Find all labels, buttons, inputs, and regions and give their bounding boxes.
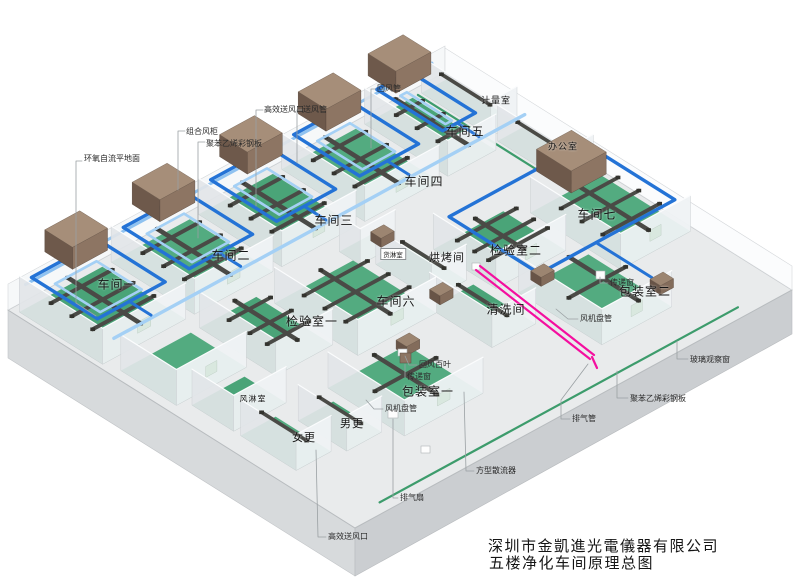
drawing-title: 五楼净化车间原理总图: [489, 552, 654, 573]
room-label-ws5: 车间五: [445, 123, 484, 140]
callout-steel-panel-b: 聚苯乙烯彩钢板: [630, 393, 686, 404]
room-label-ws7: 车间七: [577, 206, 616, 223]
room-label-office: 办公室: [548, 140, 578, 153]
callout-steel-panel-a: 聚苯乙烯彩钢板: [206, 138, 262, 149]
room-label-cleaning: 清洗间: [486, 301, 525, 318]
room-label-metrology: 计量室: [481, 94, 511, 107]
callout-glass-window: 玻璃观察窗: [690, 354, 730, 365]
room-label-packing1: 包装室一: [402, 383, 454, 400]
callout-pass-window-a: 传递窗: [610, 277, 634, 288]
room-label-women-changing: 女更: [292, 429, 316, 445]
callout-hepa-outlet-b: 高效送风口: [328, 531, 368, 542]
callout-combined-ahu: 组合风柜: [186, 126, 218, 137]
callout-exhaust-duct: 排气管: [572, 413, 596, 424]
room-label-cargo-shower: 货淋室: [380, 248, 406, 260]
room-label-ws3: 车间三: [314, 212, 353, 229]
room-label-air-shower: 风淋室: [240, 394, 267, 405]
callout-supply-duct: 送风管: [303, 104, 327, 115]
callout-pass-window-b: 传递窗: [407, 371, 431, 382]
callout-exhaust-fan: 排气扇: [400, 492, 424, 503]
room-label-inspection1: 检验室一: [286, 313, 338, 330]
room-label-baking: 烘烤间: [429, 249, 465, 265]
room-label-ws1: 车间一: [97, 276, 136, 293]
callout-fan-coil-b: 风机盘管: [385, 403, 417, 414]
callout-return-duct: 回风管: [377, 83, 401, 94]
room-label-ws4: 车间四: [404, 173, 443, 190]
callout-epoxy-floor: 环氧自流平地面: [84, 153, 140, 164]
room-label-ws2: 车间二: [211, 247, 250, 264]
callout-fan-coil-a: 风机盘管: [580, 313, 612, 324]
callout-hepa-outlet-a: 高效送风口: [264, 104, 304, 115]
room-label-ws6: 车间六: [376, 293, 415, 310]
callout-square-diffuser: 方型散流器: [476, 465, 516, 476]
callout-return-louver: 回风百叶: [419, 359, 451, 370]
cleanroom-principle-diagram: 车间一 车间二 车间三 车间四 车间五 计量室 办公室 车间七 检验室二 烘烤间…: [0, 0, 800, 587]
room-label-men-changing: 男更: [340, 415, 364, 431]
room-label-inspection2: 检验室二: [490, 242, 542, 259]
